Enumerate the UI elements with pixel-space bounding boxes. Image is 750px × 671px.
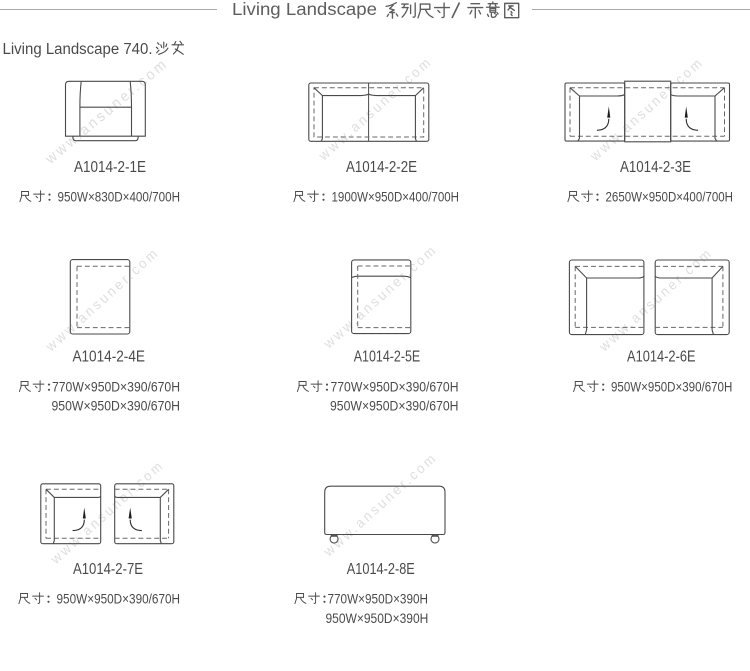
svg-text:A1014-2-5E: A1014-2-5E [354,349,421,366]
svg-text:770W×950D×390/670H: 770W×950D×390/670H [52,379,180,395]
svg-text:A1014-2-8E: A1014-2-8E [347,561,415,578]
svg-text:A1014-2-6E: A1014-2-6E [627,349,696,366]
svg-text:950W×950D×390/670H: 950W×950D×390/670H [52,398,181,414]
svg-text:950W×950D×390H: 950W×950D×390H [326,610,429,626]
svg-text:Living Landscape 740.: Living Landscape 740. [3,41,153,58]
svg-text:A1014-2-2E: A1014-2-2E [346,159,417,176]
svg-text:1900W×950D×400/700H: 1900W×950D×400/700H [332,189,460,205]
svg-text:770W×950D×390/670H: 770W×950D×390/670H [331,379,459,395]
svg-text:2650W×950D×400/700H: 2650W×950D×400/700H [606,189,734,205]
svg-text:770W×950D×390H: 770W×950D×390H [328,591,429,607]
svg-text:A1014-2-1E: A1014-2-1E [74,159,146,176]
svg-text:950W×830D×400/700H: 950W×830D×400/700H [58,189,181,205]
svg-text:950W×950D×390/670H: 950W×950D×390/670H [330,398,459,414]
svg-text:A1014-2-3E: A1014-2-3E [620,159,691,176]
svg-text:Living Landscape: Living Landscape [232,0,377,19]
svg-text:950W×950D×390/670H: 950W×950D×390/670H [611,379,732,395]
svg-text:950W×950D×390/670H: 950W×950D×390/670H [57,591,181,607]
svg-text:A1014-2-4E: A1014-2-4E [72,349,145,366]
svg-text:A1014-2-7E: A1014-2-7E [73,561,143,578]
